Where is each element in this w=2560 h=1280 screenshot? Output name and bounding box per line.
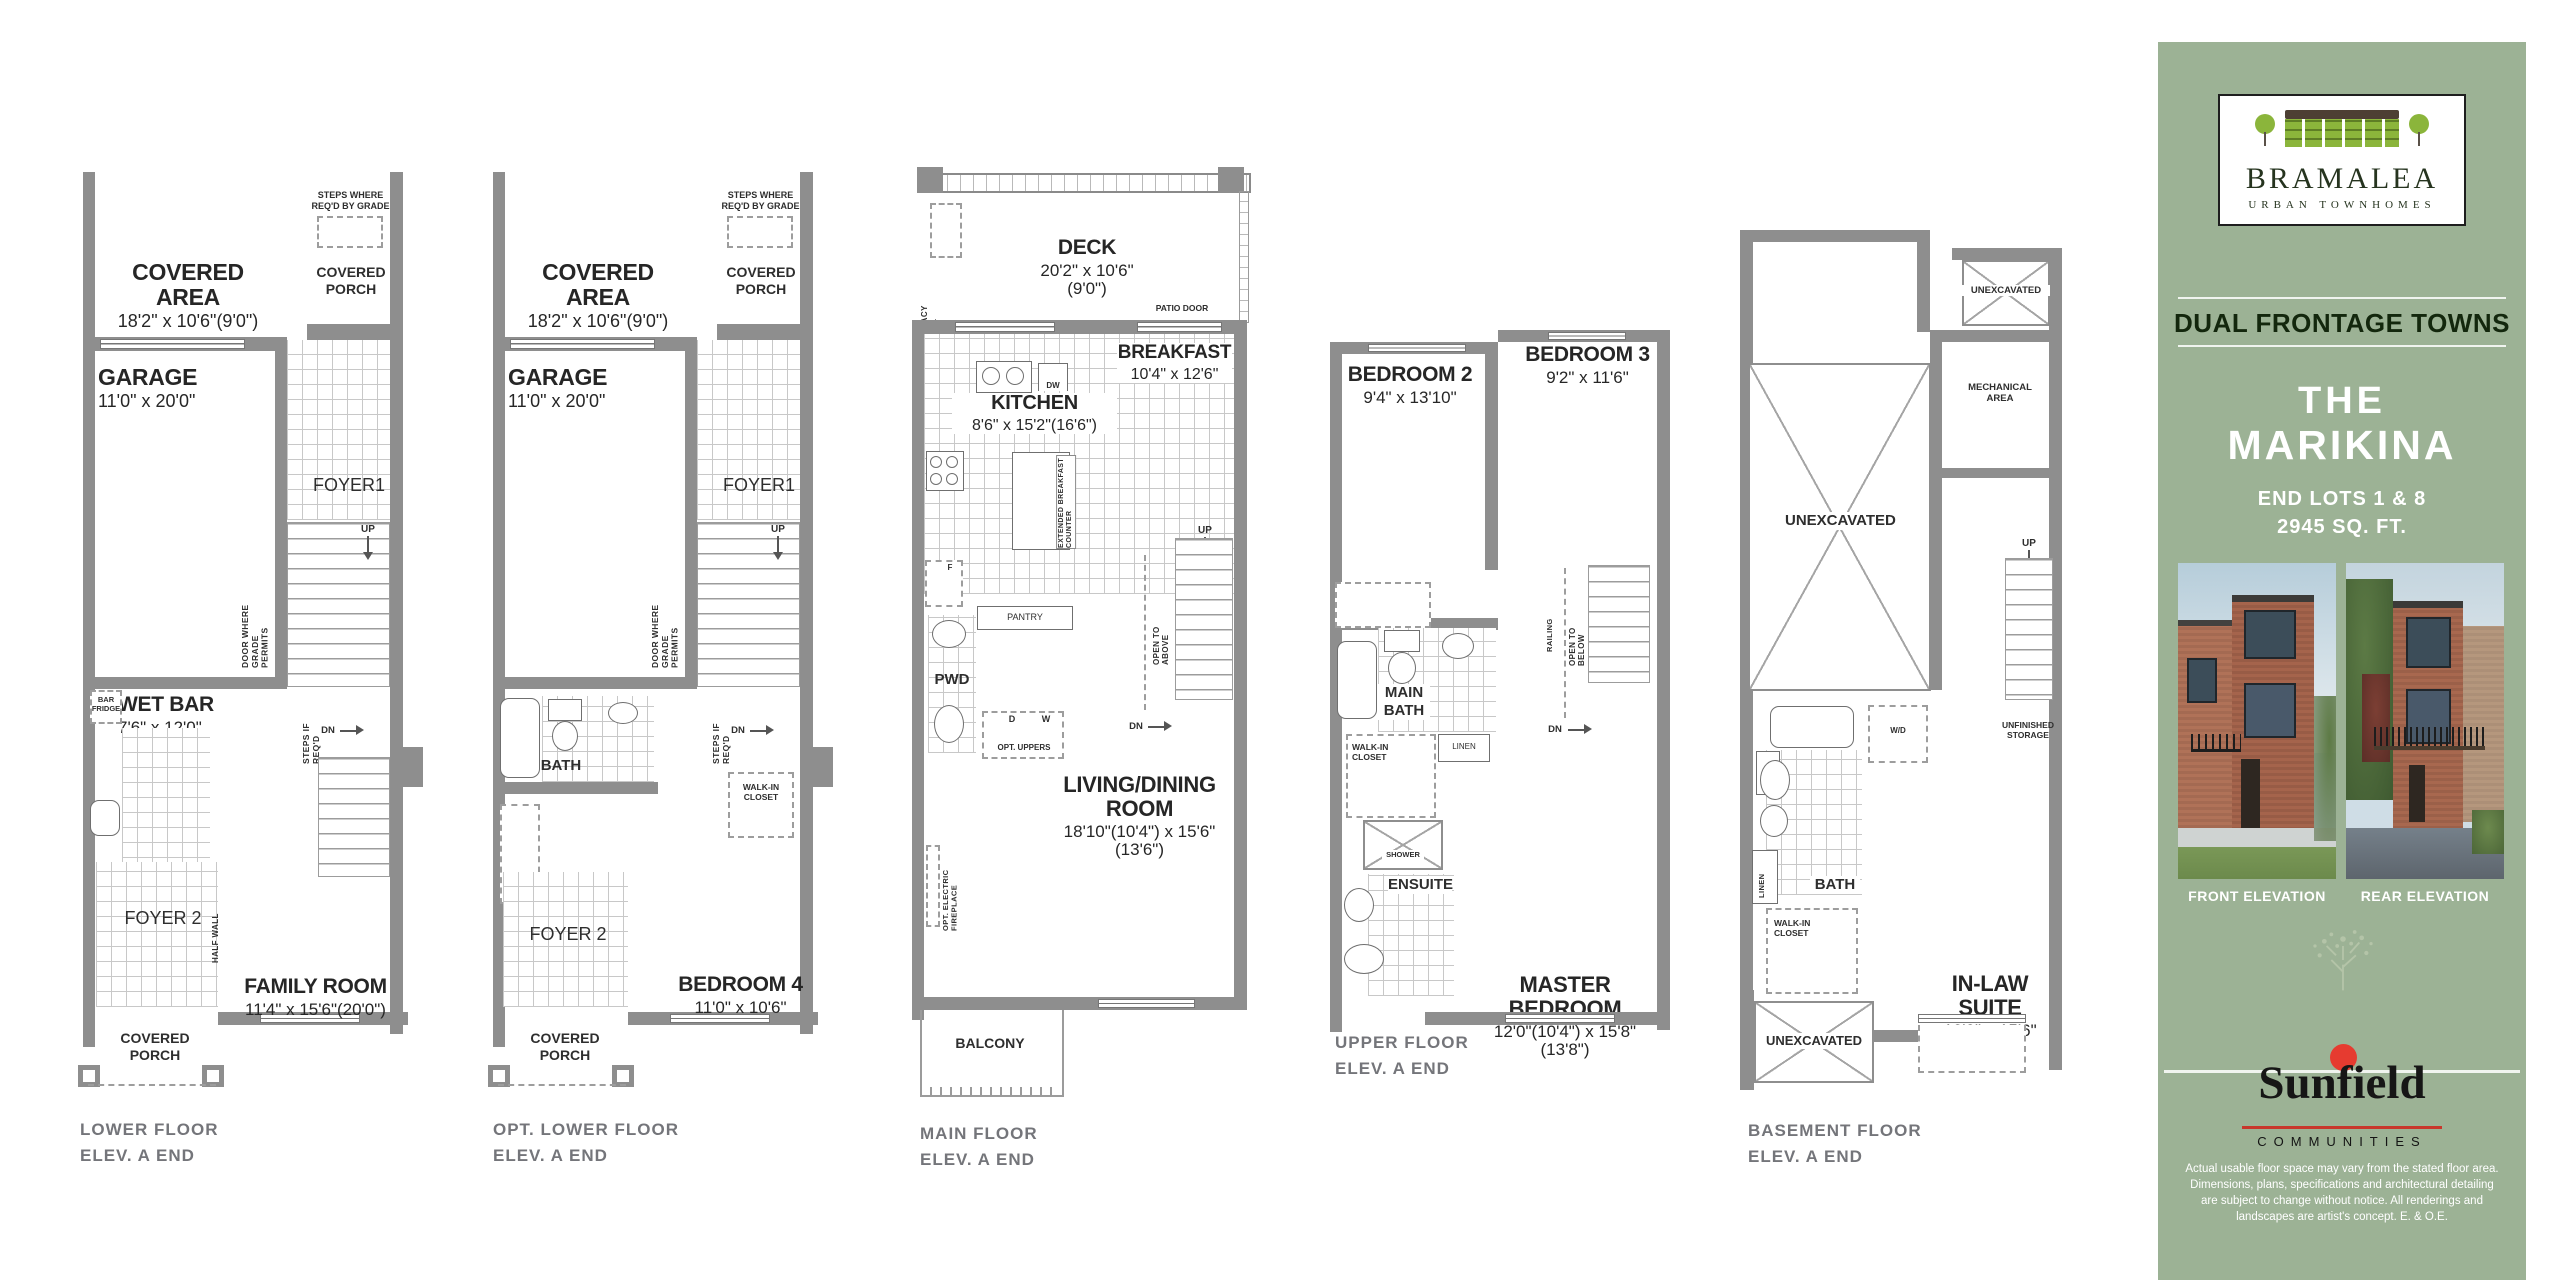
- plan-caption: LOWER FLOOR ELEV. A END: [80, 1117, 218, 1170]
- room-label-main-bath: MAIN BATH: [1378, 684, 1430, 720]
- burner: [946, 456, 958, 468]
- bush: [2314, 696, 2336, 841]
- room-label-foyer1: FOYER1: [313, 475, 373, 497]
- arrow-stem: [777, 536, 779, 552]
- room-label-bedroom2: BEDROOM 2 9'4" x 13'10": [1345, 364, 1475, 407]
- steps-note: STEPS WHERE REQ'D BY GRADE: [303, 190, 398, 212]
- deck-post: [917, 167, 943, 193]
- builder-name: Sunfield: [2202, 1056, 2482, 1110]
- plan-opt-lower-floor: STEPS WHERE REQ'D BY GRADE COVERED PORCH…: [488, 172, 858, 1172]
- open-to-above-note: OPEN TO ABOVE: [1152, 603, 1170, 665]
- wall: [1930, 330, 1942, 690]
- wall: [390, 172, 403, 1034]
- tree-icon: [2255, 114, 2275, 134]
- stairs: [287, 522, 390, 687]
- room-label-garage: GARAGE 11'0" x 20'0": [98, 365, 258, 411]
- walk-in-closet-label: WALK-IN CLOSET: [1352, 742, 1408, 762]
- toilet: [1760, 760, 1790, 800]
- wall: [912, 320, 924, 1020]
- toilet-tank: [1384, 630, 1420, 652]
- fridge-label: F: [942, 563, 958, 573]
- wall: [275, 351, 287, 687]
- deck-post: [1218, 167, 1244, 193]
- bar-fridge-label: BAR FRIDGE: [90, 695, 122, 713]
- wall: [493, 782, 658, 794]
- balcony-railing: [920, 1087, 1060, 1097]
- sink: [932, 620, 966, 648]
- wall: [1942, 468, 2052, 478]
- window: [1098, 999, 1195, 1008]
- dn-label: DN: [316, 725, 340, 736]
- model-name: MARIKINA: [2158, 422, 2526, 469]
- sink-bowl: [982, 367, 1000, 385]
- window: [1918, 1014, 2026, 1023]
- deck-dashed-box: [930, 203, 962, 258]
- open-to-below-note: OPEN TO BELOW: [1568, 600, 1586, 666]
- toilet: [1344, 944, 1384, 974]
- bramalea-logo: BRAMALEA URBAN TOWNHOMES: [2218, 94, 2466, 226]
- arrow-stem: [1148, 726, 1164, 728]
- room-label-bedroom4: BEDROOM 4 11'0" x 10'6": [663, 974, 818, 1017]
- stairs: [1588, 565, 1650, 683]
- bramalea-houses-icon: [2247, 106, 2437, 156]
- room-label-family-room: FAMILY ROOM 11'4" x 15'6"(20'0"): [223, 976, 408, 1019]
- room-label-covered-porch-bottom: COVERED PORCH: [116, 1030, 194, 1064]
- disclaimer-text: Actual usable floor space may vary from …: [2184, 1162, 2500, 1225]
- arrow-stem: [750, 730, 766, 732]
- plan-caption: UPPER FLOOR ELEV. A END: [1335, 1030, 1469, 1083]
- bathtub: [500, 698, 540, 778]
- tree-icon: [2409, 114, 2429, 134]
- right-arrow-icon: [1584, 724, 1592, 734]
- stairs: [1175, 538, 1233, 700]
- room-label-bath: BATH: [538, 757, 584, 775]
- plan-caption: MAIN FLOOR ELEV. A END: [920, 1121, 1038, 1174]
- unexcavated-label: UNEXCAVATED: [1762, 1033, 1866, 1049]
- pantry-label: PANTRY: [977, 612, 1073, 623]
- room-label-covered-area: COVERED AREA 18'2" x 10'6"(9'0"): [508, 260, 688, 331]
- down-arrow-icon: [773, 552, 783, 560]
- sqft-label: 2945 SQ. FT.: [2158, 516, 2526, 539]
- brand-name: BRAMALEA: [2220, 162, 2464, 196]
- closet-box: [1335, 582, 1431, 628]
- up-label: UP: [354, 524, 382, 536]
- tree-stem: [2264, 132, 2266, 146]
- rear-elevation-photo: [2346, 563, 2504, 879]
- deck-side-railing: [1239, 191, 1249, 323]
- wall: [403, 747, 423, 787]
- side-window: [2187, 658, 2216, 703]
- room-label-foyer2: FOYER 2: [123, 908, 203, 930]
- right-arrow-icon: [1164, 721, 1172, 731]
- toilet: [552, 721, 578, 751]
- wall: [1930, 330, 2062, 342]
- kitchen-window: [955, 322, 1055, 332]
- wall: [1657, 330, 1670, 1030]
- wall: [1234, 320, 1247, 1010]
- tree-stem: [2418, 132, 2420, 146]
- unexcavated-label: UNEXCAVATED: [1962, 285, 2050, 296]
- steps-dashed-box: [727, 216, 793, 248]
- plan-caption: BASEMENT FLOOR ELEV. A END: [1748, 1118, 1922, 1171]
- dw-label: DW: [1039, 381, 1067, 391]
- fireplace-box: [926, 845, 940, 927]
- wall: [912, 997, 1072, 1010]
- room-label-pwd: PWD: [930, 671, 974, 689]
- brochure-page: STEPS WHERE REQ'D BY GRADE COVERED PORCH…: [0, 0, 2560, 1280]
- bathtub: [1770, 706, 1854, 748]
- wall: [800, 172, 813, 1034]
- burner: [930, 473, 942, 485]
- shower-box: [1363, 820, 1443, 870]
- walkway: [2178, 828, 2336, 847]
- red-rule: [2242, 1126, 2442, 1129]
- room-label-covered-porch-bottom: COVERED PORCH: [526, 1030, 604, 1064]
- toilet-tank: [548, 699, 582, 721]
- stairs: [697, 522, 800, 687]
- up-label: UP: [1192, 525, 1218, 537]
- divider: [2178, 297, 2506, 299]
- window: [1505, 1014, 1615, 1023]
- toilet: [1388, 652, 1416, 684]
- down-arrow-icon: [363, 552, 373, 560]
- wall: [717, 324, 813, 340]
- window: [1368, 344, 1466, 352]
- dn-label: DN: [1124, 721, 1148, 732]
- opt-uppers-label: OPT. UPPERS: [994, 743, 1054, 753]
- linen-label: LINEN: [1758, 856, 1767, 898]
- room-label-garage: GARAGE 11'0" x 20'0": [508, 365, 668, 411]
- shower-label: SHOWER: [1382, 850, 1424, 859]
- room-label-mechanical: MECHANICAL AREA: [1956, 382, 2044, 405]
- room-label-bath: BATH: [1810, 876, 1860, 894]
- walk-in-closet-label: WALK-IN CLOSET: [734, 782, 788, 802]
- room-label-covered-area: COVERED AREA 18'2" x 10'6"(9'0"): [98, 260, 278, 331]
- steps-note: STEPS WHERE REQ'D BY GRADE: [713, 190, 808, 212]
- plan-upper-floor: BEDROOM 2 9'4" x 13'10" BEDROOM 3 9'2" x…: [1330, 330, 1682, 1090]
- unexcavated-label: UNEXCAVATED: [1785, 512, 1895, 530]
- program-title: DUAL FRONTAGE TOWNS: [2158, 308, 2526, 339]
- patio-door-label: PATIO DOOR: [1150, 303, 1214, 313]
- arrow-stem: [367, 536, 369, 552]
- wall: [813, 747, 833, 787]
- arrow-stem: [340, 730, 356, 732]
- wd-label: W/D: [1882, 726, 1914, 736]
- right-arrow-icon: [356, 725, 364, 735]
- room-label-bedroom3: BEDROOM 3 9'2" x 11'6": [1525, 344, 1650, 387]
- walk-in-closet-label: WALK-IN CLOSET: [1774, 918, 1828, 938]
- right-arrow-icon: [766, 725, 774, 735]
- model-name-the: THE: [2158, 380, 2526, 423]
- burner: [946, 473, 958, 485]
- wall: [1740, 230, 1930, 242]
- toilet: [934, 705, 964, 743]
- half-wall-note: HALF WALL: [211, 908, 220, 963]
- stairs: [2005, 558, 2053, 700]
- room-label-deck: DECK 20'2" x 10'6"(9'0"): [1022, 237, 1152, 298]
- front-elevation-label: FRONT ELEVATION: [2178, 888, 2336, 904]
- balcony: [920, 1010, 1064, 1097]
- builder-subtitle: COMMUNITIES: [2202, 1134, 2482, 1149]
- dn-label: DN: [1542, 724, 1568, 735]
- open-to-below-boundary: [1564, 568, 1566, 718]
- sink: [1344, 888, 1374, 922]
- wall: [83, 677, 287, 689]
- extended-counter-note: EXTENDED BREAKFAST COUNTER: [1056, 455, 1076, 549]
- deck-rail: [2374, 727, 2485, 750]
- door-grade-note: DOOR WHERE GRADE PERMITS: [651, 596, 680, 668]
- rear-elevation-label: REAR ELEVATION: [2346, 888, 2504, 904]
- linen-label: LINEN: [1438, 742, 1490, 752]
- room-label-foyer2: FOYER 2: [528, 924, 608, 946]
- plan-basement-floor: UNEXCAVATED MECHANICAL AREA UNEXCAVATED …: [1740, 230, 2090, 1170]
- arrow-stem: [1568, 729, 1584, 731]
- tree-watermark-icon: [2308, 924, 2378, 996]
- divider: [2178, 345, 2506, 347]
- sink-bowl: [1006, 367, 1024, 385]
- front-elevation-photo: [2178, 563, 2336, 879]
- washer-label: W: [1038, 714, 1054, 725]
- room-label-living: LIVING/DINING ROOM 18'10"(10'4") x 15'6"…: [1047, 773, 1232, 859]
- patio-door-window: [1137, 322, 1222, 332]
- room-label-breakfast: BREAKFAST 10'4" x 12'6": [1117, 343, 1232, 383]
- wall: [493, 677, 697, 689]
- plan-main-floor: PRIVACY WALL DECK 20'2" x 10'6"(9'0") PA…: [912, 165, 1264, 1175]
- wall: [1485, 342, 1498, 570]
- townhome-row: [2285, 119, 2399, 147]
- burner: [930, 456, 942, 468]
- wet-bar-sink: [90, 800, 120, 836]
- deck-railing: [920, 173, 1251, 193]
- wall: [307, 324, 403, 340]
- sink: [608, 702, 638, 724]
- bathtub: [1337, 641, 1377, 719]
- adjacent-unit: [2178, 620, 2232, 835]
- upper-window: [2406, 617, 2451, 668]
- unfinished-storage-label: UNFINISHED STORAGE: [1998, 720, 2058, 740]
- roof-bar: [2285, 110, 2399, 119]
- patio-outline: [1918, 1025, 2026, 1073]
- garage-door: [510, 339, 655, 349]
- sink: [1760, 805, 1788, 837]
- front-door: [2241, 759, 2260, 829]
- porch-edge: [88, 1084, 216, 1086]
- sink: [1442, 633, 1474, 659]
- porch-edge: [498, 1084, 626, 1086]
- room-label-ensuite: ENSUITE: [1388, 876, 1452, 894]
- room-label-kitchen: KITCHEN 8'6" x 15'2"(16'6"): [952, 393, 1117, 434]
- sidebar-panel: BRAMALEA URBAN TOWNHOMES DUAL FRONTAGE T…: [2158, 42, 2526, 1280]
- dryer-label: D: [1004, 714, 1020, 725]
- up-label: UP: [764, 524, 792, 536]
- stairs: [318, 757, 390, 877]
- plan-caption: OPT. LOWER FLOOR ELEV. A END: [493, 1117, 679, 1170]
- door-grade-note: DOOR WHERE GRADE PERMITS: [241, 596, 270, 668]
- open-to-above-boundary: [1144, 555, 1146, 710]
- opt-fireplace-note: OPT. ELECTRIC FIREPLACE: [942, 843, 959, 931]
- garage-door: [100, 339, 245, 349]
- lots-label: END LOTS 1 & 8: [2158, 488, 2526, 511]
- room-label-covered-porch: COVERED PORCH: [720, 264, 802, 298]
- window: [1548, 332, 1626, 340]
- bush: [2472, 810, 2504, 854]
- wall: [685, 351, 697, 687]
- wall: [1917, 242, 1930, 332]
- dn-label: DN: [726, 725, 750, 736]
- railing-note: RAILING: [1546, 612, 1555, 652]
- balcony-rail: [2191, 734, 2242, 753]
- lower-door: [2409, 765, 2425, 822]
- up-label: UP: [2016, 538, 2042, 550]
- brand-tagline: URBAN TOWNHOMES: [2220, 199, 2464, 211]
- wall: [83, 172, 95, 1047]
- room-label-foyer1: FOYER1: [723, 475, 783, 497]
- adjacent-unit: [2463, 626, 2504, 822]
- wall: [1952, 248, 2062, 260]
- room-label-balcony: BALCONY: [947, 1035, 1033, 1052]
- upper-window: [2244, 610, 2295, 658]
- middle-window: [2244, 683, 2295, 738]
- room-label-covered-porch: COVERED PORCH: [310, 264, 392, 298]
- steps-dashed-box: [317, 216, 383, 248]
- wall: [1740, 990, 1754, 1090]
- foyer2-tile-floor: [96, 862, 218, 1007]
- plan-lower-floor: STEPS WHERE REQ'D BY GRADE COVERED PORCH…: [78, 172, 448, 1172]
